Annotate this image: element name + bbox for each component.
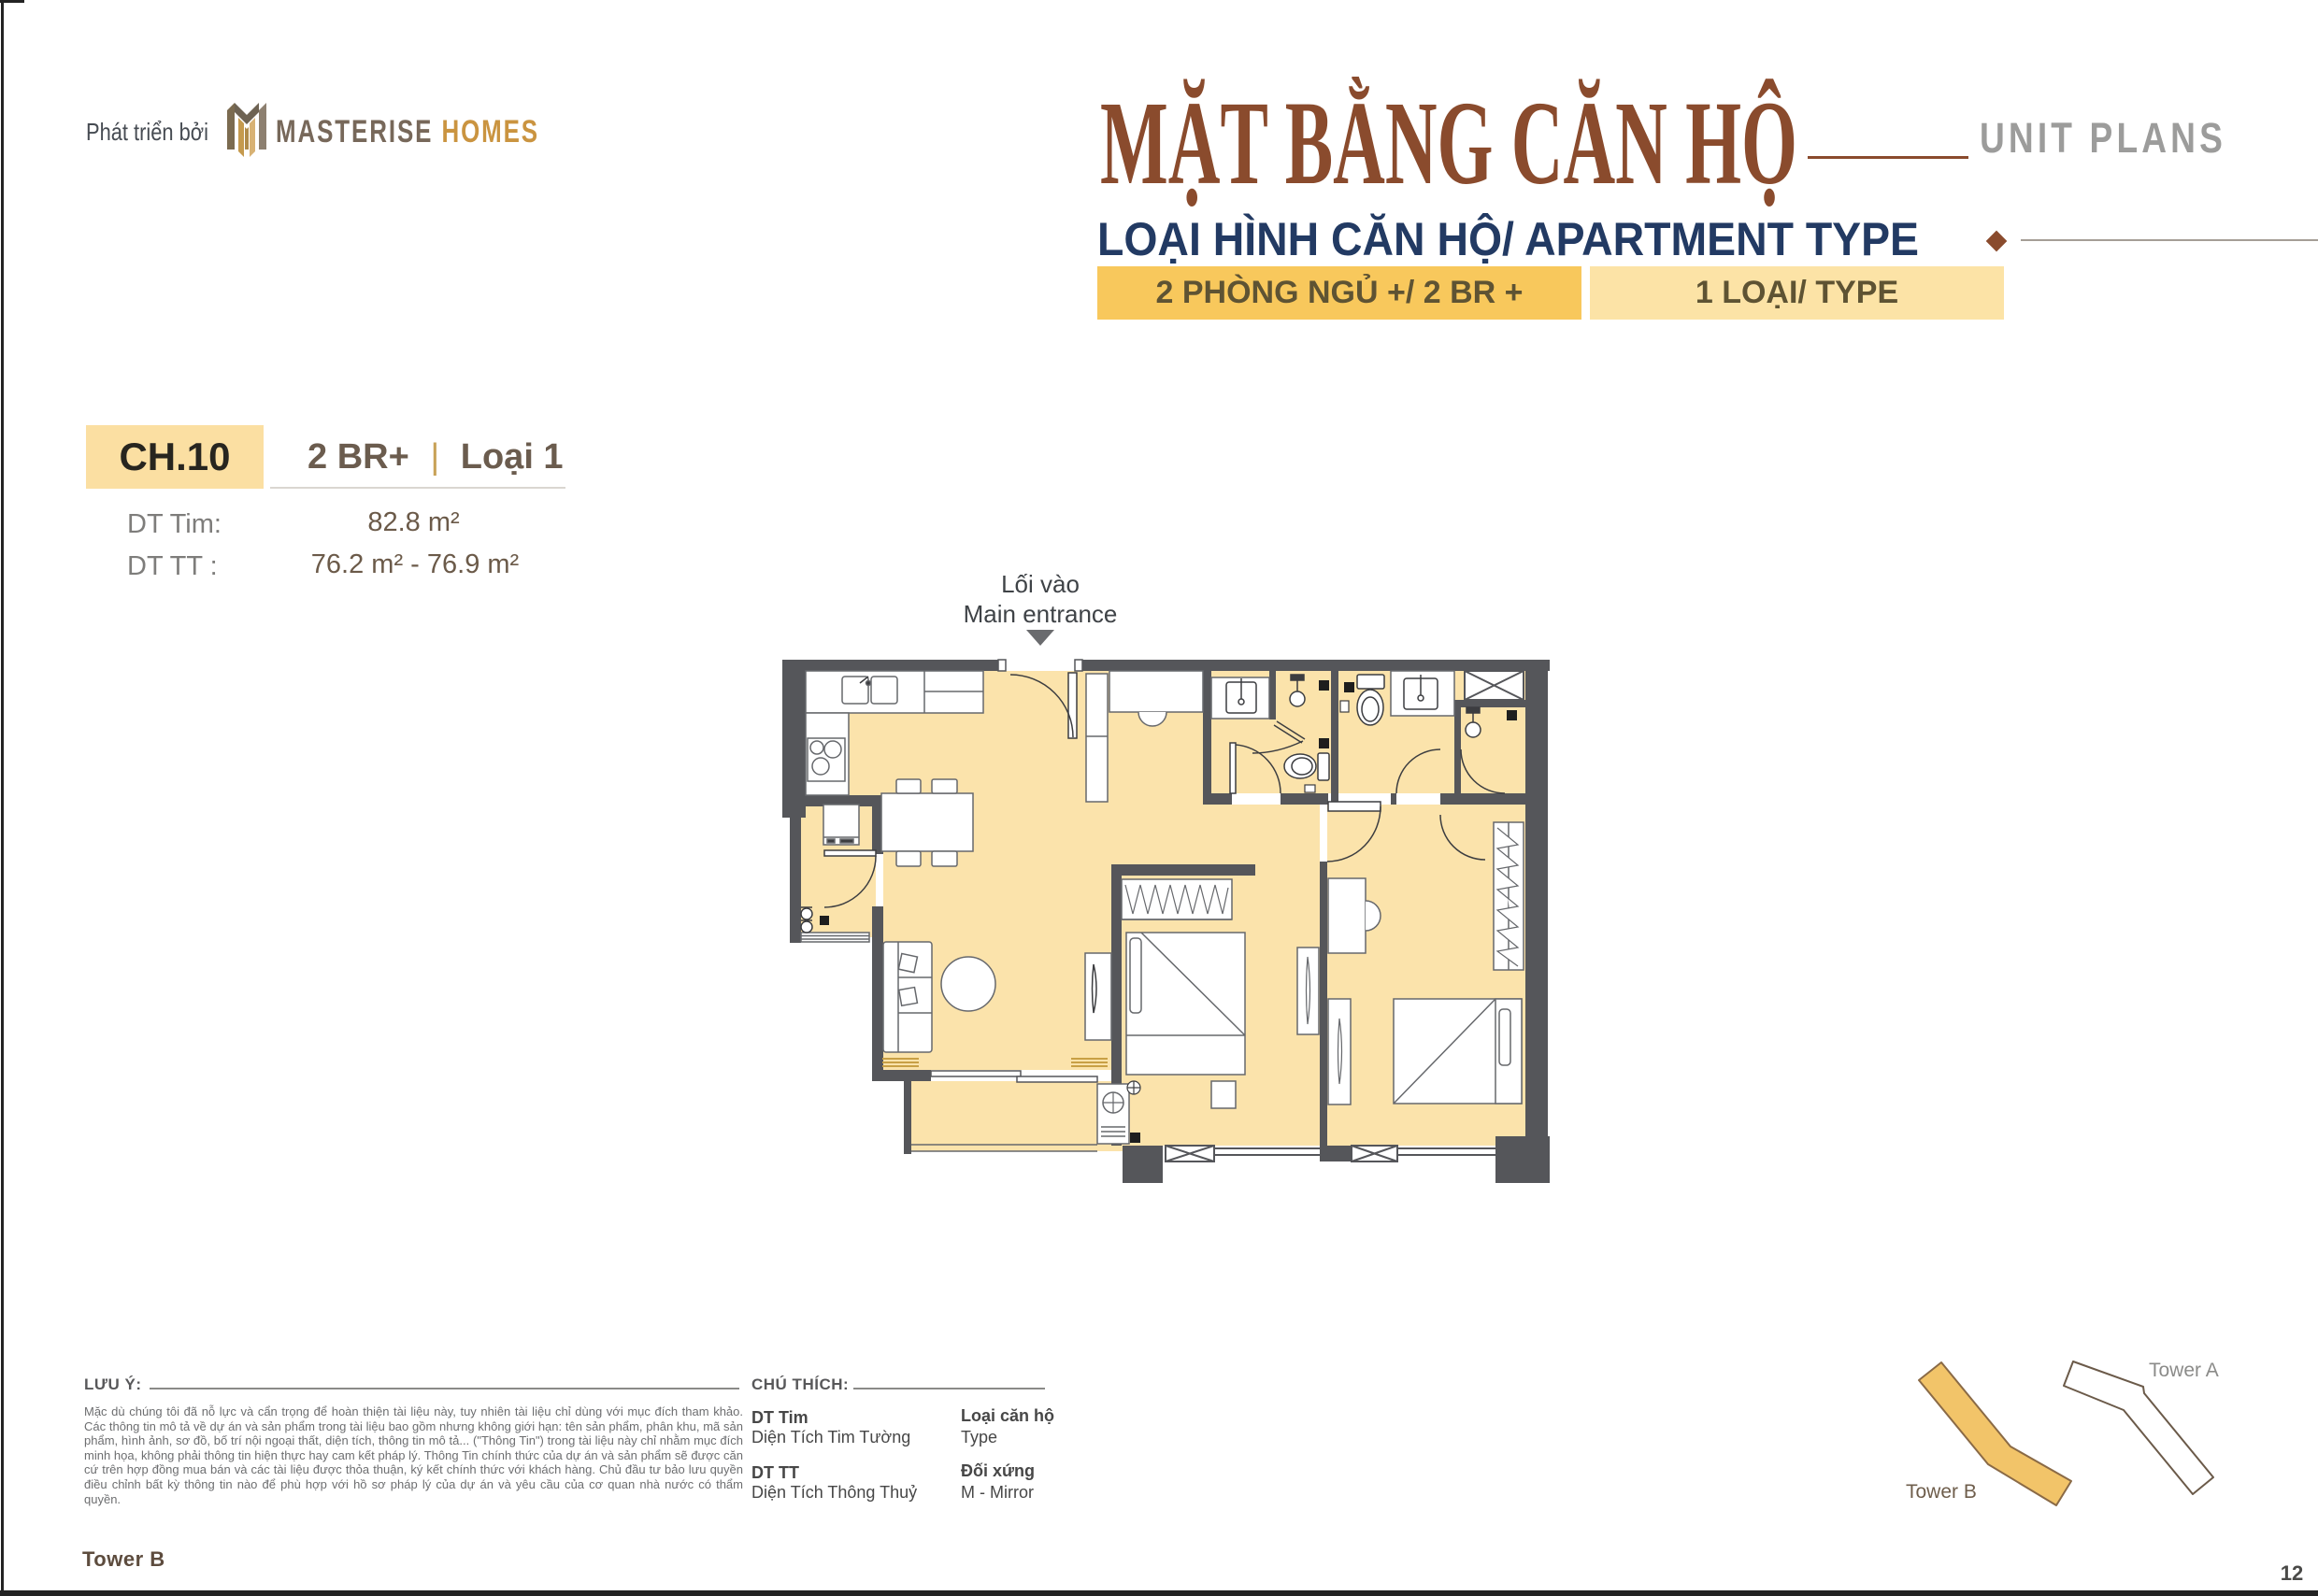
svg-text:Main entrance: Main entrance <box>964 600 1118 628</box>
svg-text:Lối vào: Lối vào <box>1001 570 1080 598</box>
